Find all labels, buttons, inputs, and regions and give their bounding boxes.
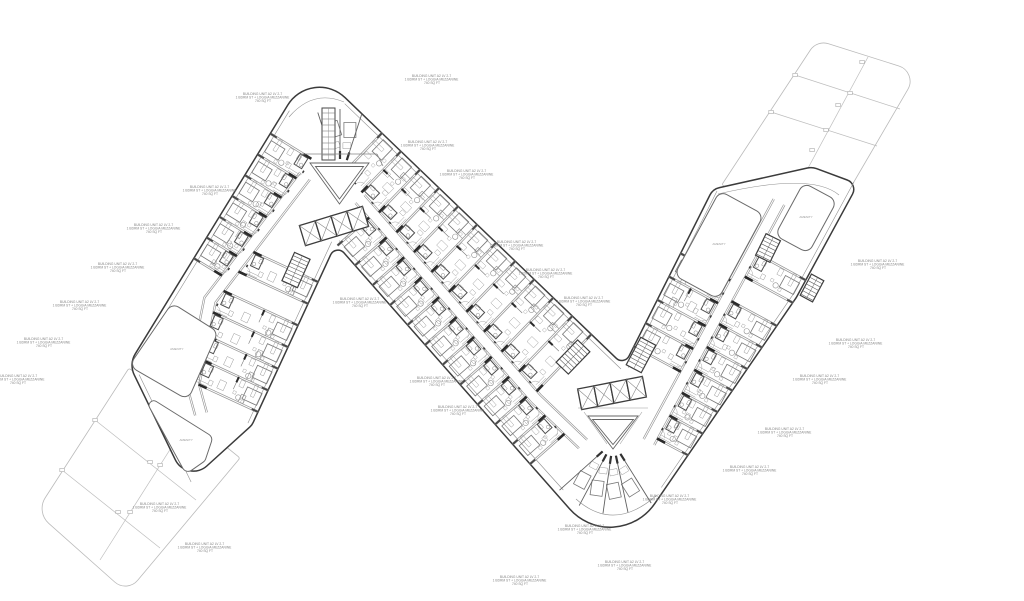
- svg-text:AMENITY: AMENITY: [712, 242, 725, 246]
- svg-text:AMENITY: AMENITY: [799, 215, 812, 219]
- svg-text:AMENITY: AMENITY: [170, 347, 183, 351]
- svg-text:AMENITY: AMENITY: [180, 438, 193, 442]
